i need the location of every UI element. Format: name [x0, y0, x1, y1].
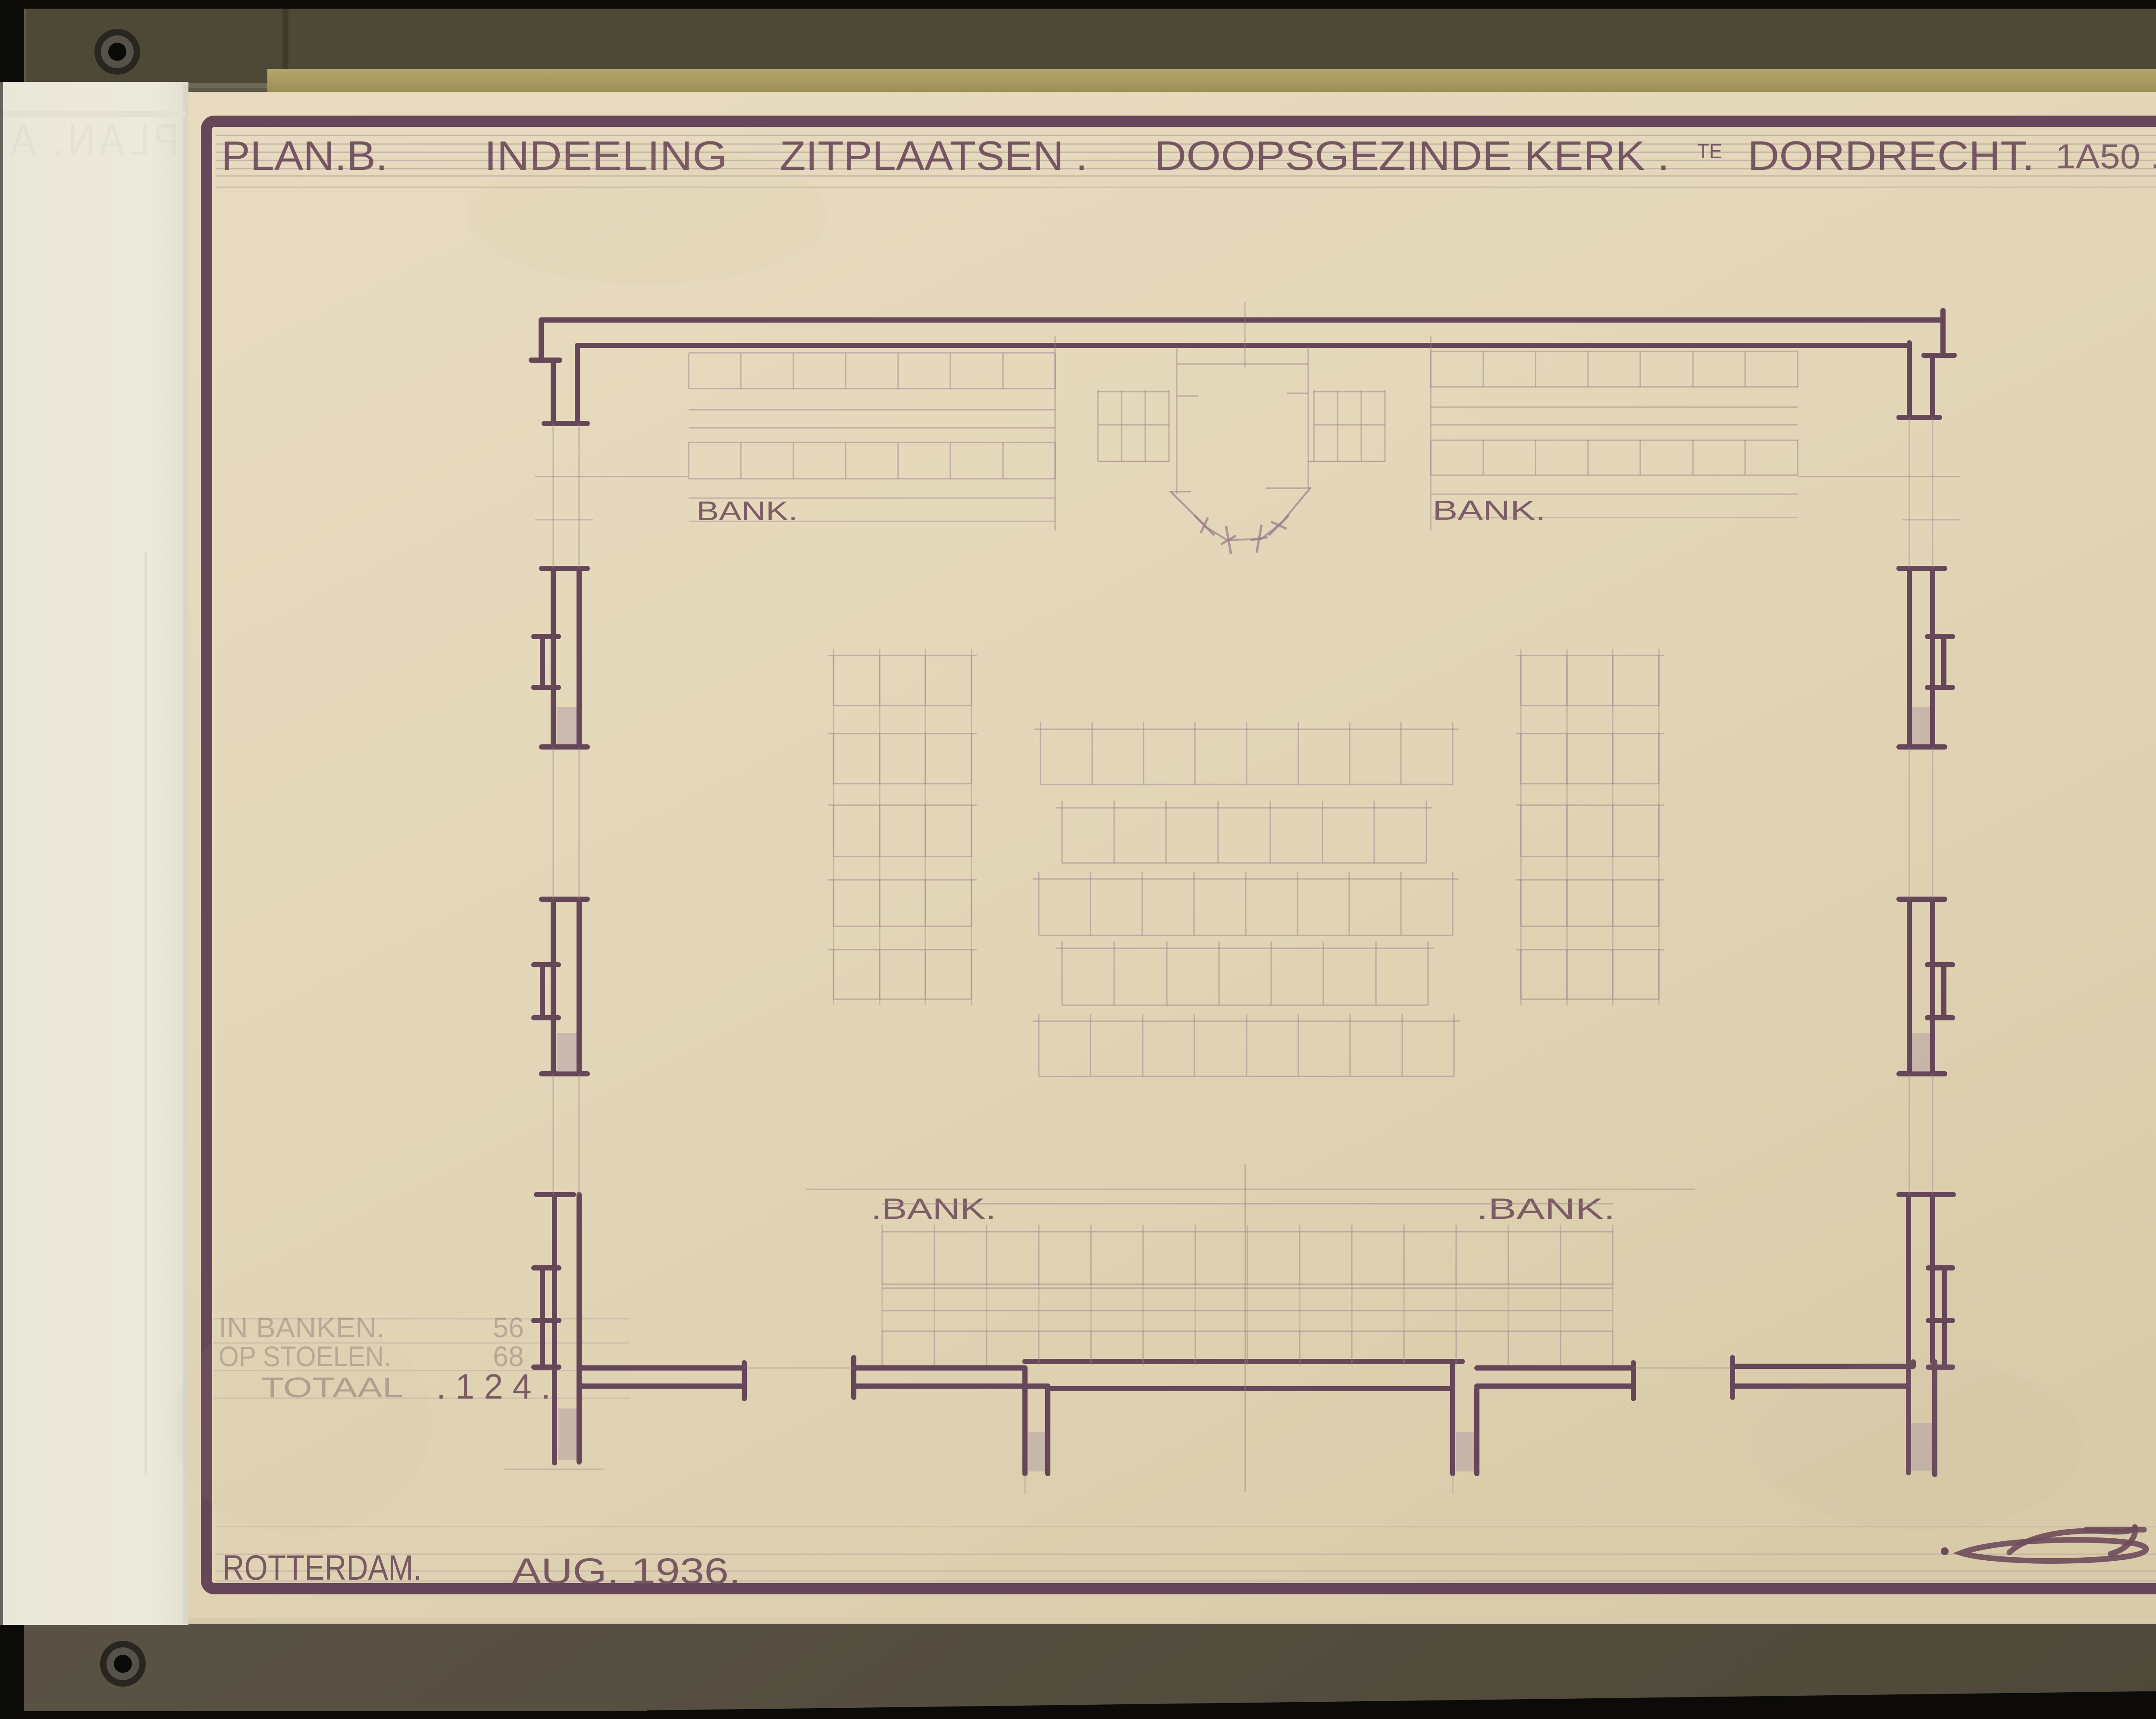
svg-text:1A50 . .: 1A50 . .	[2056, 137, 2156, 176]
svg-text:TE: TE	[1697, 140, 1722, 163]
svg-text:.BANK.: .BANK.	[1476, 1192, 1615, 1225]
svg-text:.BANK.: .BANK.	[871, 1192, 996, 1225]
svg-text:ROTTERDAM.: ROTTERDAM.	[222, 1548, 422, 1587]
svg-text:ZITPLAATSEN .: ZITPLAATSEN .	[780, 133, 1087, 179]
svg-text:DORDRECHT.: DORDRECHT.	[1748, 133, 2034, 179]
svg-text:DOOPSGEZINDE KERK .: DOOPSGEZINDE KERK .	[1154, 133, 1670, 179]
svg-text:AUG. 1936.: AUG. 1936.	[512, 1551, 741, 1591]
svg-text:PLAN. A: PLAN. A	[6, 115, 179, 165]
svg-text:. 1 2 4 .: . 1 2 4 .	[436, 1367, 551, 1406]
svg-text:PLAN.B.: PLAN.B.	[221, 133, 388, 179]
svg-text:BANK.: BANK.	[1432, 495, 1546, 526]
svg-text:56: 56	[493, 1311, 524, 1343]
